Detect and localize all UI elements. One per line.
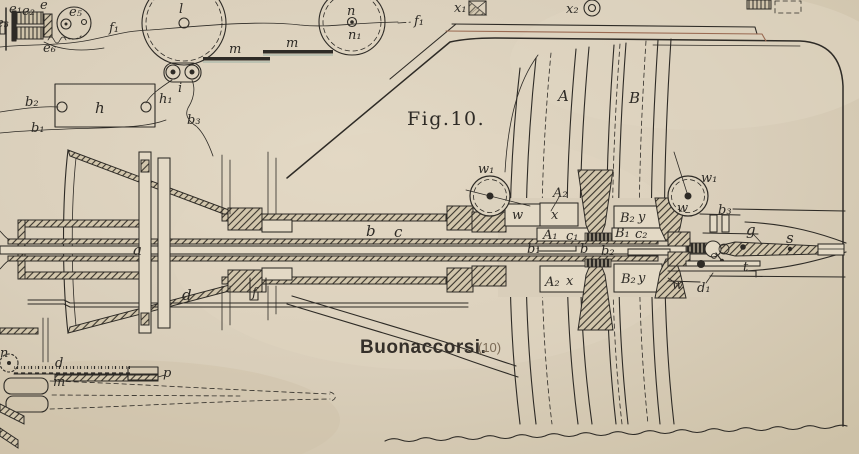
label-g: g: [746, 221, 756, 239]
figure-caption: Fig.10.: [407, 108, 485, 130]
label-l: l: [179, 2, 183, 17]
label-b-mid: b: [580, 242, 588, 257]
label-A2-bottom: A₂: [544, 275, 560, 290]
bar-m1: [203, 57, 270, 61]
label-x1: x₁: [454, 1, 467, 16]
bar-b1: [538, 246, 576, 251]
label-n: n: [347, 4, 355, 19]
label-b2-wire: b₂: [25, 95, 39, 110]
label-b3-part: b₃: [718, 203, 732, 218]
label-y-upper: y: [637, 210, 646, 225]
label-e3: e₃: [0, 16, 9, 31]
label-B: B: [628, 89, 640, 107]
label-b3-wire: b₃: [187, 113, 201, 128]
figure-attribution: Buonaccorsi.: [360, 337, 486, 358]
label-A1: A₁: [542, 228, 558, 243]
label-x2: x₂: [566, 2, 579, 17]
label-s: s: [786, 229, 794, 247]
label-A2-top: A₂: [552, 186, 568, 201]
label-a: a: [133, 241, 142, 259]
label-b1-wire: b₁: [31, 121, 45, 136]
label-B2-lower: B₂: [620, 272, 636, 287]
label-B1: B₁: [614, 226, 630, 241]
label-e5: e₅: [69, 5, 83, 20]
label-b1-shaft: b₁: [527, 242, 541, 257]
top-right-hatched-box-icon: [747, 0, 771, 9]
label-A: A: [556, 87, 569, 105]
label-n-rack: n: [0, 346, 8, 361]
label-w1-right: w₁: [701, 171, 717, 186]
label-w-right: w: [677, 201, 688, 216]
label-m1: m: [229, 42, 241, 57]
label-e6: e₆: [43, 41, 56, 56]
figure-attribution-number: (10): [478, 340, 501, 355]
label-e: e: [40, 0, 48, 13]
label-c2: c₂: [635, 227, 648, 242]
bulkhead-rear: [158, 158, 170, 328]
label-p-rack: p: [163, 366, 172, 381]
label-w-left: w: [512, 208, 523, 223]
label-b-tube: b: [366, 222, 376, 240]
label-b2-shaft: b₂: [601, 244, 615, 259]
bar-b2: [628, 249, 670, 255]
label-f1-mid: f₁: [108, 21, 119, 36]
label-x-upper: x: [551, 208, 559, 223]
label-i: i: [178, 81, 182, 96]
label-h: h: [95, 99, 105, 117]
gear-rack: [14, 366, 130, 374]
label-c-tube: c: [394, 223, 403, 241]
label-y-lower: y: [637, 271, 646, 286]
label-m-rack: m: [53, 375, 65, 390]
label-d1: d₁: [697, 281, 711, 296]
label-x-lower: x: [566, 274, 574, 289]
torpedo-mechanism-figure: e₁ e₂ e₃ e e₅ e₆ l n n₁ f₁ f₁ m m h h₁ i…: [0, 0, 859, 454]
label-d-rod: d: [182, 286, 192, 304]
label-n1: n₁: [348, 28, 362, 43]
coil-lower: [17, 27, 43, 39]
label-h1: h₁: [159, 92, 173, 107]
label-m2: m: [286, 36, 298, 51]
label-w1-left: w₁: [478, 162, 494, 177]
label-c1: c₁: [566, 229, 579, 244]
label-d-rack: d: [55, 356, 63, 371]
label-e2: e₂: [22, 4, 35, 19]
label-w-bottom: w: [672, 278, 683, 293]
label-t: t: [743, 260, 749, 275]
box-x-upper: [540, 203, 578, 226]
label-e1: e₁: [9, 2, 22, 17]
label-f1-end: f₁: [413, 14, 424, 29]
spindle-tip-guide: [818, 244, 844, 255]
patent-drawing-page: e₁ e₂ e₃ e e₅ e₆ l n n₁ f₁ f₁ m m h h₁ i…: [0, 0, 859, 454]
label-B2-upper: B₂: [619, 211, 635, 226]
